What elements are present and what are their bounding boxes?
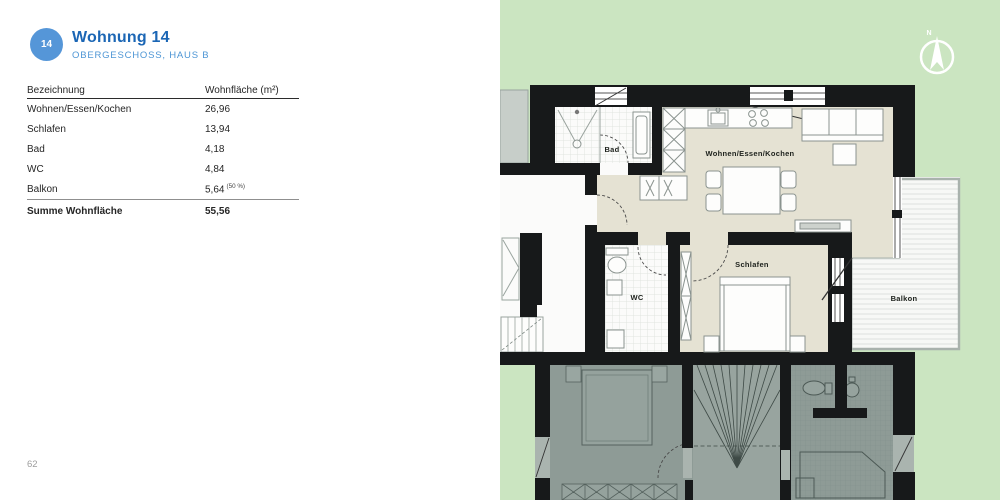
row-value: 4,84 [205, 164, 299, 175]
table-row: Schlafen 13,94 [27, 119, 299, 139]
page-subtitle: OBERGESCHOSS, HAUS B [72, 50, 209, 61]
area-table: Bezeichnung Wohnfläche (m²) Wohnen/Essen… [27, 83, 299, 223]
neighbor-balcony [500, 90, 528, 163]
kitchen-cabinet [663, 108, 685, 172]
label-schlafen: Schlafen [735, 260, 769, 269]
balkon-value: 5,64 [205, 184, 224, 195]
label-bad: Bad [604, 145, 619, 154]
gray-bed [582, 370, 652, 445]
row-value: 26,96 [205, 104, 299, 115]
side-table [833, 144, 856, 165]
row-value: 13,94 [205, 124, 299, 135]
table-row: Bad 4,18 [27, 139, 299, 159]
apartment-header: 14 Wohnung 14 OBERGESCHOSS, HAUS B [30, 28, 209, 61]
floorplan-svg: Bad Wohnen/Essen/Kochen Schlafen WC Balk… [500, 0, 1000, 500]
label-wohnen: Wohnen/Essen/Kochen [706, 149, 795, 158]
coat-rack [640, 176, 687, 200]
wc-toilet [608, 257, 626, 273]
shower-head [575, 110, 579, 114]
row-label: Balkon [27, 184, 205, 195]
nightstand [704, 336, 719, 352]
col-header-wohnflaeche: Wohnfläche (m²) [205, 85, 299, 96]
apartment-header-text: Wohnung 14 OBERGESCHOSS, HAUS B [72, 28, 209, 61]
row-value: 5,64(50 %) [205, 183, 299, 195]
bed [720, 277, 790, 351]
dining-table [723, 167, 780, 214]
sofa [802, 109, 883, 141]
row-value: 4,18 [205, 144, 299, 155]
table-row: Balkon 5,64(50 %) [27, 179, 299, 200]
row-label: Wohnen/Essen/Kochen [27, 104, 205, 115]
info-panel: 14 Wohnung 14 OBERGESCHOSS, HAUS B Bezei… [0, 0, 500, 500]
nightstand [790, 336, 805, 352]
row-label: WC [27, 164, 205, 175]
kitchen-counter [685, 108, 792, 128]
row-label: Bad [27, 144, 205, 155]
sink [845, 383, 859, 397]
apartment-number-badge: 14 [30, 28, 63, 61]
label-balkon: Balkon [891, 294, 918, 303]
compass-north-label: N [926, 30, 931, 37]
row-label: Schlafen [27, 124, 205, 135]
toilet [803, 381, 825, 395]
brochure-page: 14 Wohnung 14 OBERGESCHOSS, HAUS B Bezei… [0, 0, 1000, 500]
gray-wardrobe [562, 484, 677, 500]
balkon-50-percent-note: (50 %) [226, 183, 245, 190]
label-wc: WC [630, 293, 643, 302]
table-header-row: Bezeichnung Wohnfläche (m²) [27, 83, 299, 99]
table-row: WC 4,84 [27, 159, 299, 179]
table-total-row: Summe Wohnfläche 55,56 [27, 200, 299, 223]
col-header-bezeichnung: Bezeichnung [27, 85, 205, 96]
page-title: Wohnung 14 [72, 29, 209, 47]
total-value: 55,56 [205, 206, 299, 217]
page-number: 62 [27, 459, 38, 470]
table-row: Wohnen/Essen/Kochen 26,96 [27, 99, 299, 119]
wc-sink [607, 280, 622, 295]
floorplan-panel: Bad Wohnen/Essen/Kochen Schlafen WC Balk… [500, 0, 1000, 500]
lowboard [795, 220, 851, 232]
total-label: Summe Wohnfläche [27, 206, 205, 217]
